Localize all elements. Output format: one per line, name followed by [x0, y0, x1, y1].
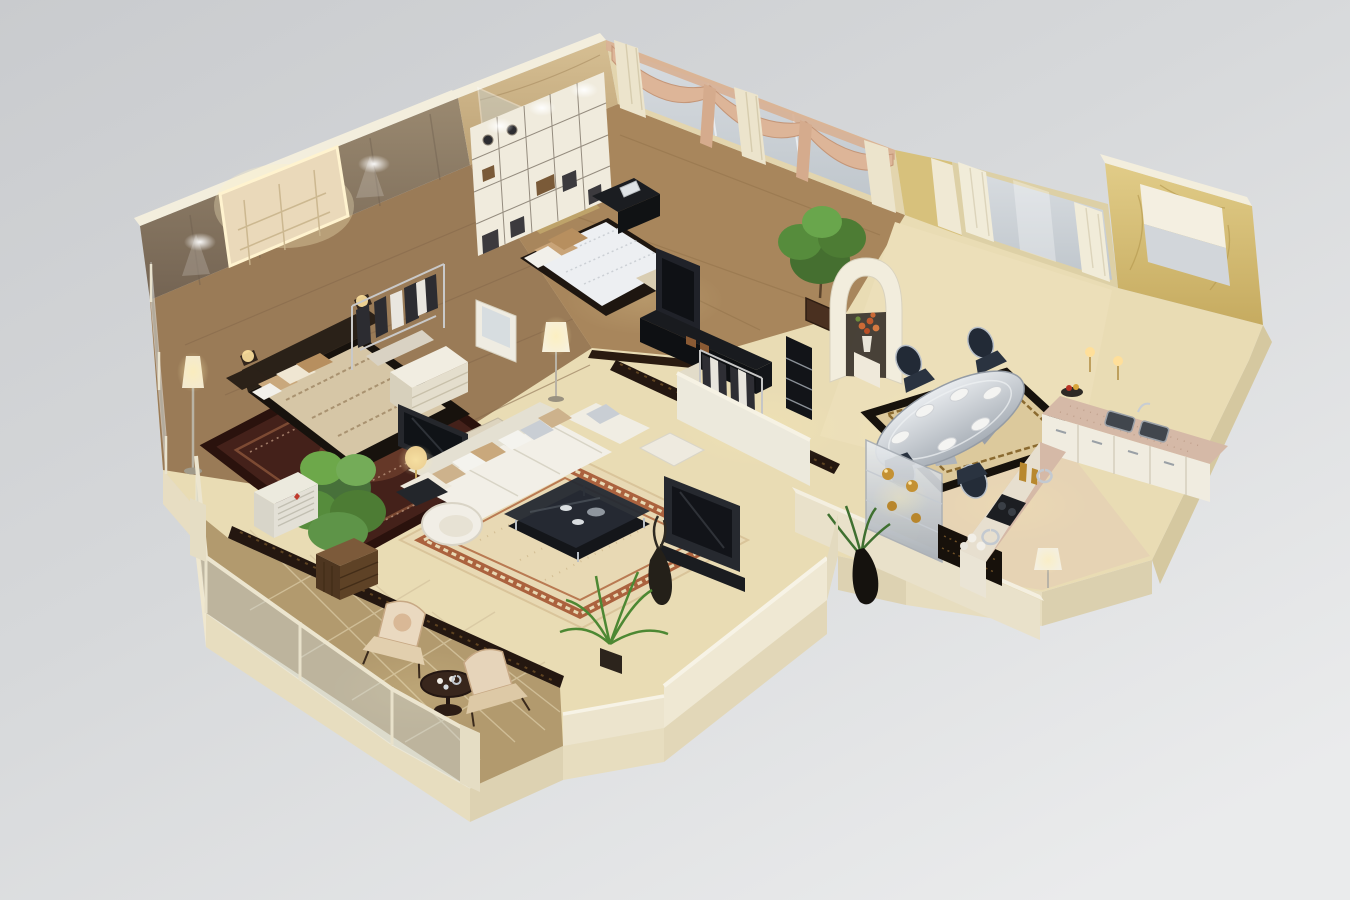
table-cup [572, 519, 584, 525]
fruit [1073, 384, 1079, 390]
white-mug [968, 534, 977, 543]
tree-foliage [336, 454, 376, 486]
floorplan-render [0, 0, 1350, 900]
fruit [1066, 385, 1072, 391]
apartment-cutaway-svg [0, 0, 1350, 900]
candle-light [1113, 356, 1123, 366]
candle-light [1085, 347, 1095, 357]
table-cup [560, 505, 572, 511]
shelf-speaker [483, 135, 493, 145]
burner [998, 502, 1006, 510]
burner [1008, 508, 1016, 516]
lamp-glow [540, 316, 572, 356]
tea-set [437, 678, 443, 684]
sideboard-glow [872, 476, 928, 520]
lamp-glow [242, 350, 254, 362]
shelf-spotlight [570, 82, 598, 98]
closet-black-column [786, 336, 812, 420]
white-mug [960, 542, 968, 550]
lamp-glow [1034, 546, 1062, 574]
tea-set [443, 684, 448, 689]
spotlight-glow [184, 233, 216, 251]
spotlight-glow [358, 155, 390, 173]
white-mug [977, 542, 986, 551]
lamp-base [548, 396, 564, 402]
fruit-bowl [1061, 387, 1083, 397]
railing-corner-pillar [190, 498, 206, 562]
table-bowl [587, 508, 605, 517]
plant-foliage [802, 206, 842, 238]
lamp-glow [398, 444, 434, 476]
shelf-spotlight [528, 100, 556, 116]
railing-corner-pillar [460, 724, 480, 792]
lamp-glow [177, 352, 209, 392]
shelf-spotlight [486, 118, 514, 134]
lounge-chair-cushion [439, 515, 473, 537]
